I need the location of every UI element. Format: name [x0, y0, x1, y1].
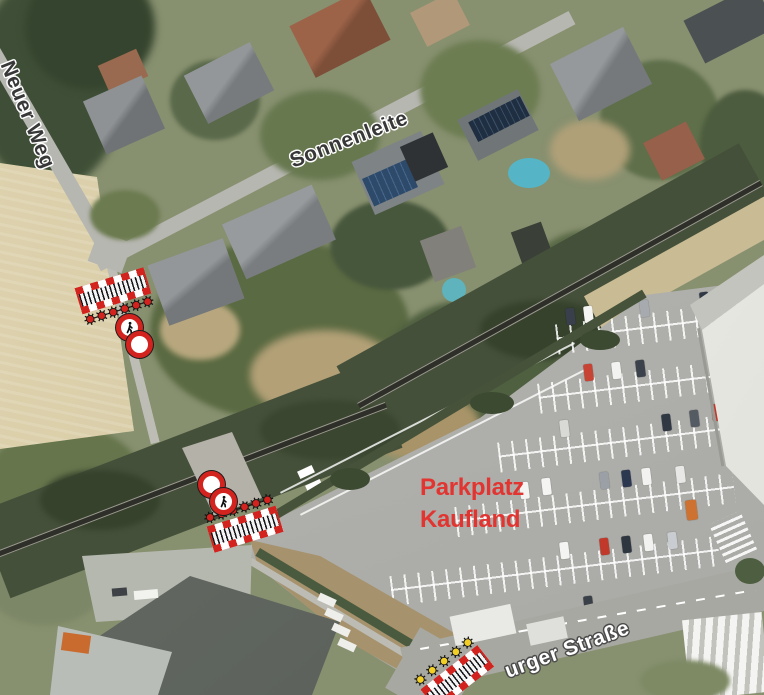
annotation-overlay: Neuer Weg Sonnenleite urger Straße Parkp…: [0, 0, 764, 695]
barrier-south: [412, 634, 494, 695]
annotation-line-1: Parkplatz: [420, 472, 524, 504]
pedestrian-icon: [217, 495, 230, 508]
warning-lamp-icon: [140, 294, 155, 309]
annotated-aerial-map: Neuer Weg Sonnenleite urger Straße Parkp…: [0, 0, 764, 695]
barrier-north: [75, 267, 156, 327]
street-label-burger-strasse: urger Straße: [502, 617, 632, 681]
no-pedestrians-sign: [210, 488, 237, 515]
street-label-neuer-weg: Neuer Weg: [0, 58, 59, 171]
no-vehicles-sign: [126, 331, 153, 358]
annotation-line-2: Kaufland: [420, 504, 524, 536]
street-label-sonnenleite: Sonnenleite: [287, 107, 411, 171]
warning-lamp-icon: [260, 492, 275, 507]
parkplatz-kaufland-annotation: Parkplatz Kaufland: [420, 472, 524, 536]
